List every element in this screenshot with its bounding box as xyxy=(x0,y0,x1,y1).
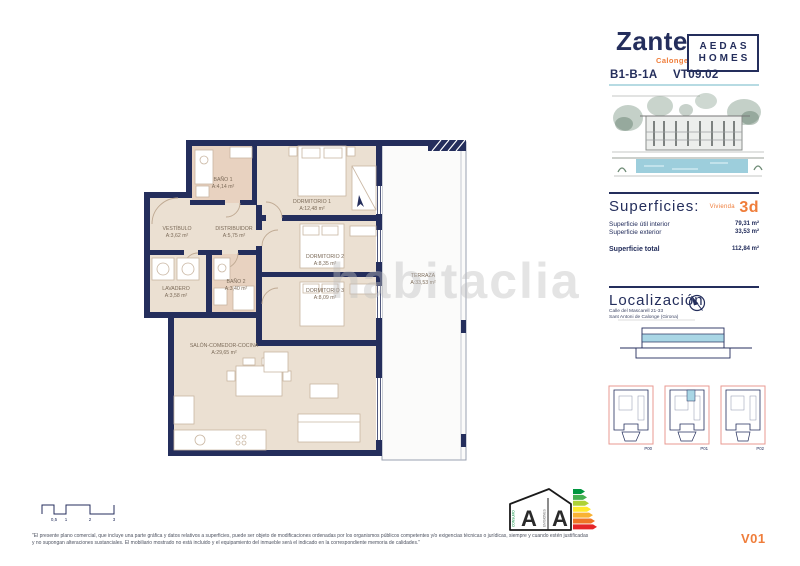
page-title: Zante xyxy=(616,26,688,57)
superficie-total-label: Superficie total xyxy=(609,246,660,253)
keyplan-label-p01: P01 xyxy=(700,446,708,451)
room-label-terraza: TERRAZA xyxy=(411,273,436,279)
plan-sheet: BAÑO 1 A:4,14 m² DORMITORIO 1 A:12,48 m²… xyxy=(0,0,800,566)
unit-type-label: Vivienda xyxy=(710,204,735,210)
scale-label-3: 3 xyxy=(113,517,116,522)
disclaimer-line-1: "El presente plano comercial, que incluy… xyxy=(32,533,722,540)
scale-label-1: 1 xyxy=(65,517,68,522)
scale-bar: 0,5 1 2 3 xyxy=(42,505,116,522)
room-area-banio1: A:4,14 m² xyxy=(212,184,235,190)
room-area-distribuidor: A:5,75 m² xyxy=(223,233,246,239)
divider-blue xyxy=(609,84,759,86)
superficie-interior-label: Superficie útil interior xyxy=(609,221,670,228)
superficie-row-exterior: Superficie exterior 33,53 m² xyxy=(609,229,759,236)
unit-code: B1-B-1A xyxy=(610,69,657,81)
room-label-dormitorio2: DORMITORIO 2 xyxy=(306,254,344,260)
scale-label-05: 0,5 xyxy=(51,517,58,522)
version-tag: V01 xyxy=(741,531,766,546)
superficie-row-total: Superficie total 112,84 m² xyxy=(609,246,759,253)
room-label-banio2: BAÑO 2 xyxy=(226,278,245,285)
disclaimer-line-2: y no supongan alteraciones sustanciales.… xyxy=(32,540,722,547)
unit-type: Vivienda 3d xyxy=(609,199,759,217)
room-area-dormitorio3: A:8,09 m² xyxy=(314,295,337,301)
building-render-sketch xyxy=(612,93,764,176)
aedas-homes-logo: AEDAS HOMES xyxy=(687,34,759,72)
divider-localizacion xyxy=(609,286,759,288)
room-label-banio1: BAÑO 1 xyxy=(213,176,232,183)
room-label-dormitorio1: DORMITORIO 1 xyxy=(293,199,331,205)
site-elevation xyxy=(618,320,752,358)
energy-caption-left: CONSUMO xyxy=(512,510,516,527)
room-label-distribuidor: DISTRIBUIDOR xyxy=(215,226,252,232)
terrace-floor xyxy=(382,142,466,460)
unit-type-value: 3d xyxy=(739,199,759,216)
superficie-exterior-value: 33,53 m² xyxy=(735,229,759,236)
energy-letter-left: A xyxy=(521,506,537,531)
keyplan-unit-highlight xyxy=(687,390,695,401)
keyplan-p00 xyxy=(609,386,653,444)
room-label-vestibulo: VESTÍBULO xyxy=(162,225,191,232)
scale-label-2: 2 xyxy=(89,517,92,522)
energy-caption-right: EMISIONES xyxy=(543,509,547,527)
keyplan-p01 xyxy=(665,386,709,444)
address: Calle del Mascarell 21-33 Sant Antoni de… xyxy=(609,309,678,321)
room-area-salon: A:29,65 m² xyxy=(211,350,237,356)
superficie-exterior-label: Superficie exterior xyxy=(609,229,661,236)
superficie-row-interior: Superficie útil interior 79,31 m² xyxy=(609,221,759,228)
energy-letter-right: A xyxy=(552,506,568,531)
room-label-dormitorio3: DORMITORIO 3 xyxy=(306,288,344,294)
brand-line-1: AEDAS xyxy=(696,41,749,54)
floor-plan: BAÑO 1 A:4,14 m² DORMITORIO 1 A:12,48 m²… xyxy=(144,140,466,460)
room-area-dormitorio2: A:8,35 m² xyxy=(314,261,337,267)
room-area-banio2: A:3,40 m² xyxy=(225,286,248,292)
superficie-interior-value: 79,31 m² xyxy=(735,221,759,228)
energy-arrows xyxy=(573,489,597,529)
brand-line-2: HOMES xyxy=(696,53,751,66)
terrace-edge-block-2 xyxy=(461,434,466,447)
view-code: VT09.02 xyxy=(673,69,719,81)
divider-superficies xyxy=(609,192,759,194)
room-label-lavadero: LAVADERO xyxy=(162,286,189,292)
superficie-total-value: 112,84 m² xyxy=(732,246,759,253)
disclaimer: "El presente plano comercial, que incluy… xyxy=(32,533,722,546)
room-area-lavadero: A:3,58 m² xyxy=(165,293,188,299)
keyplans: P00 P01 P02 xyxy=(609,386,765,451)
terrace-edge-block-1 xyxy=(461,320,466,333)
keyplan-p02 xyxy=(721,386,765,444)
room-area-terraza: A:33,53 m² xyxy=(410,280,436,286)
localizacion-title: Localización xyxy=(609,292,704,309)
room-area-dormitorio1: A:12,48 m² xyxy=(299,206,325,212)
address-line-2: Sant Antoni de Calonge (Girona) xyxy=(609,315,678,321)
keyplan-label-p00: P00 xyxy=(644,446,652,451)
keyplan-label-p02: P02 xyxy=(756,446,764,451)
room-label-salon: SALÓN-COMEDOR-COCINA xyxy=(190,342,259,349)
energy-rating-logo: A A CONSUMO EMISIONES xyxy=(510,489,597,531)
hatched-wall-section xyxy=(428,140,466,151)
room-area-vestibulo: A:3,62 m² xyxy=(166,233,189,239)
project-subtitle: Calonge xyxy=(656,56,688,65)
